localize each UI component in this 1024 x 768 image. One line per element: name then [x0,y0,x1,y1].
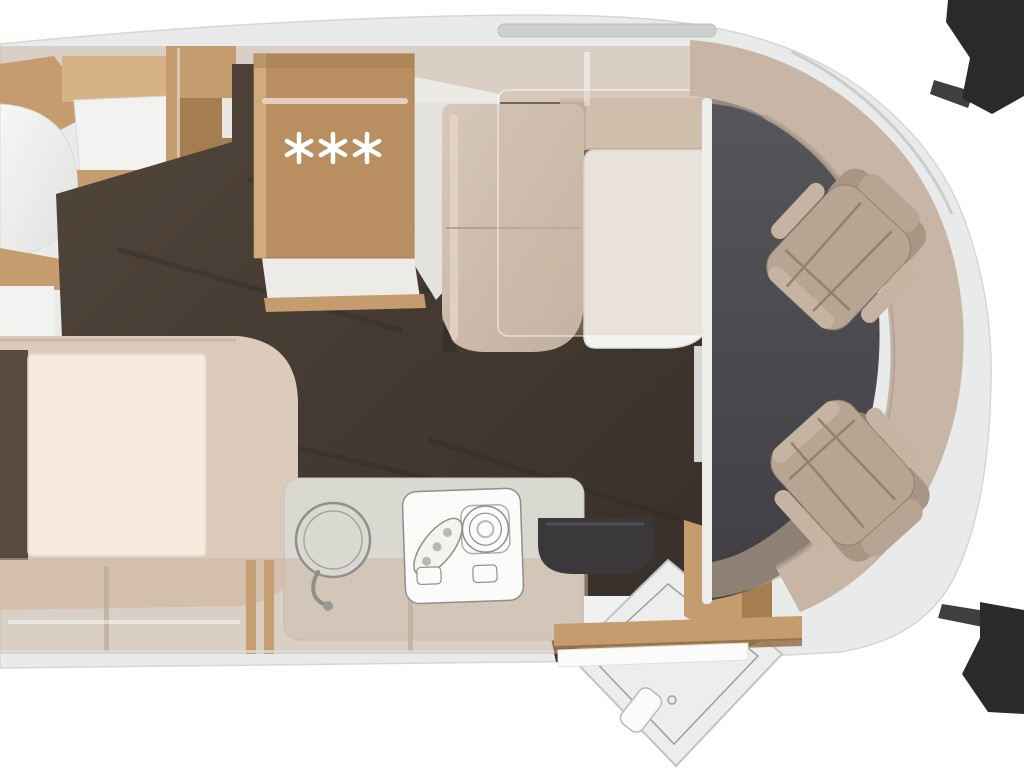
fridge-top-shadow [254,54,414,68]
fridge-side-strip [254,54,266,258]
floorplan-canvas [0,0,1024,768]
hob-knob-a [417,567,442,585]
fridge-symbols [287,134,379,162]
fridge [254,54,414,258]
mattress [28,354,206,556]
bottom-wood-post-a [246,560,256,654]
rear-shelf-panel [74,96,170,176]
bottom-wood-post-b [264,560,274,654]
hob [402,488,524,604]
rear-shelf [62,56,170,102]
body-sill-line [0,650,640,653]
bottom-shelf-line [8,620,240,624]
toilet [538,518,654,574]
bed-side-gap [0,350,28,560]
cab-separator [702,98,712,604]
sink [296,503,370,577]
roof-rail [498,24,716,37]
bottom-divider-a [104,566,109,652]
hob-knob-b [473,565,498,583]
motorhome-floorplan [0,0,1024,768]
fridge-rail-rod [262,98,408,104]
faucet-base [323,601,333,611]
table-leg [694,346,702,462]
rear-white-panel [0,286,54,338]
